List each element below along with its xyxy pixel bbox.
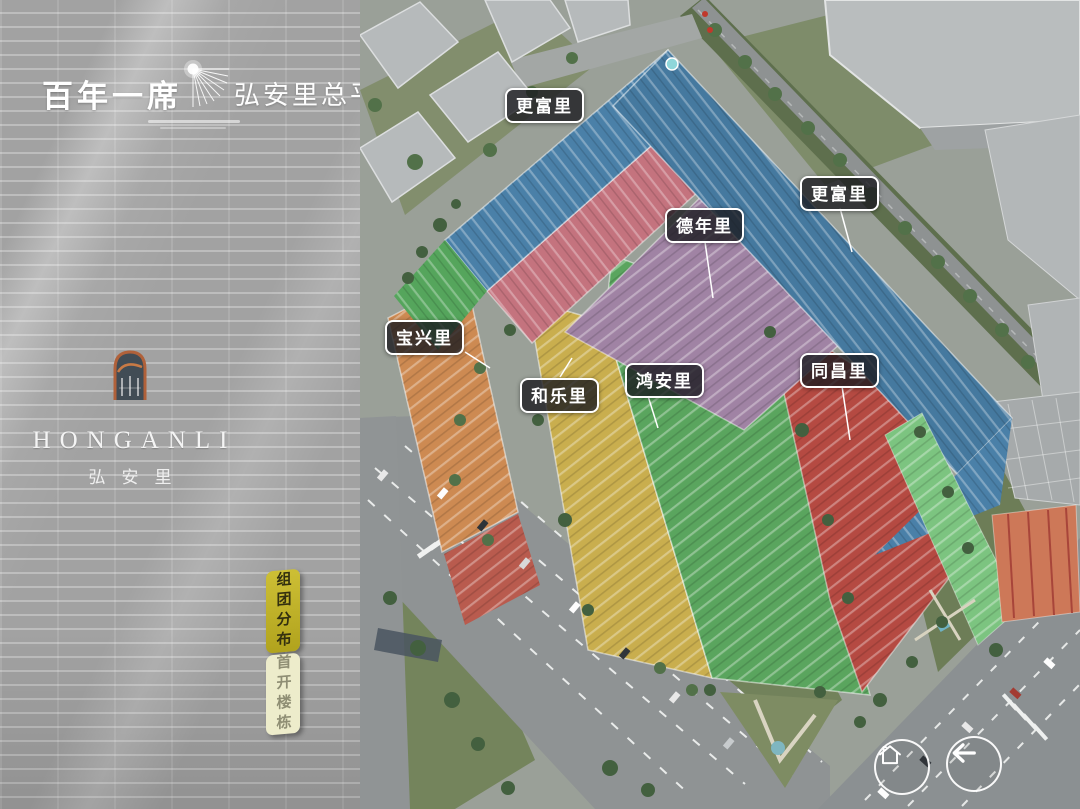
fan-rays-icon [184, 60, 230, 113]
site-plan-viewport[interactable]: 更富里 更富里 德年里 宝兴里 和乐里 鸿安里 同昌里 [360, 0, 1080, 809]
zone-label-tongchangli[interactable]: 同昌里 [800, 353, 879, 388]
back-arrow-icon [948, 738, 978, 768]
zone-label-gengfuli-east[interactable]: 更富里 [800, 176, 879, 211]
tab-group-distribution[interactable]: 组团分布 [266, 569, 300, 654]
zone-label-baoxingli[interactable]: 宝兴里 [385, 320, 464, 355]
view-tabs: 组团分布 首开楼栋 [266, 568, 304, 735]
arch-gate-icon [111, 348, 149, 407]
home-button[interactable] [874, 739, 930, 795]
brand-sidebar: 百年一席 [0, 0, 360, 809]
logo-wordmark-en: HONGANLI [0, 427, 260, 455]
tab-first-launch-buildings[interactable]: 首开楼栋 [266, 653, 300, 736]
zone-label-honganli-zone[interactable]: 鸿安里 [625, 363, 704, 398]
zone-label-denianli[interactable]: 德年里 [665, 208, 744, 243]
title-caption-line [148, 120, 240, 123]
zone-label-gengfuli-north[interactable]: 更富里 [505, 88, 584, 123]
brand-logo-block: HONGANLI 弘安里 [0, 348, 260, 488]
page-title-row: 百年一席 [42, 66, 354, 120]
title-caption-line-2 [160, 127, 226, 129]
back-button[interactable] [946, 736, 1002, 792]
app-window: 百年一席 [0, 0, 1080, 809]
home-icon [876, 741, 904, 769]
site-plan-render [360, 0, 1080, 809]
brand-tagline: 百年一席 [42, 71, 182, 116]
zone-label-heleli[interactable]: 和乐里 [520, 378, 599, 413]
logo-wordmark-cn: 弘安里 [0, 463, 260, 488]
